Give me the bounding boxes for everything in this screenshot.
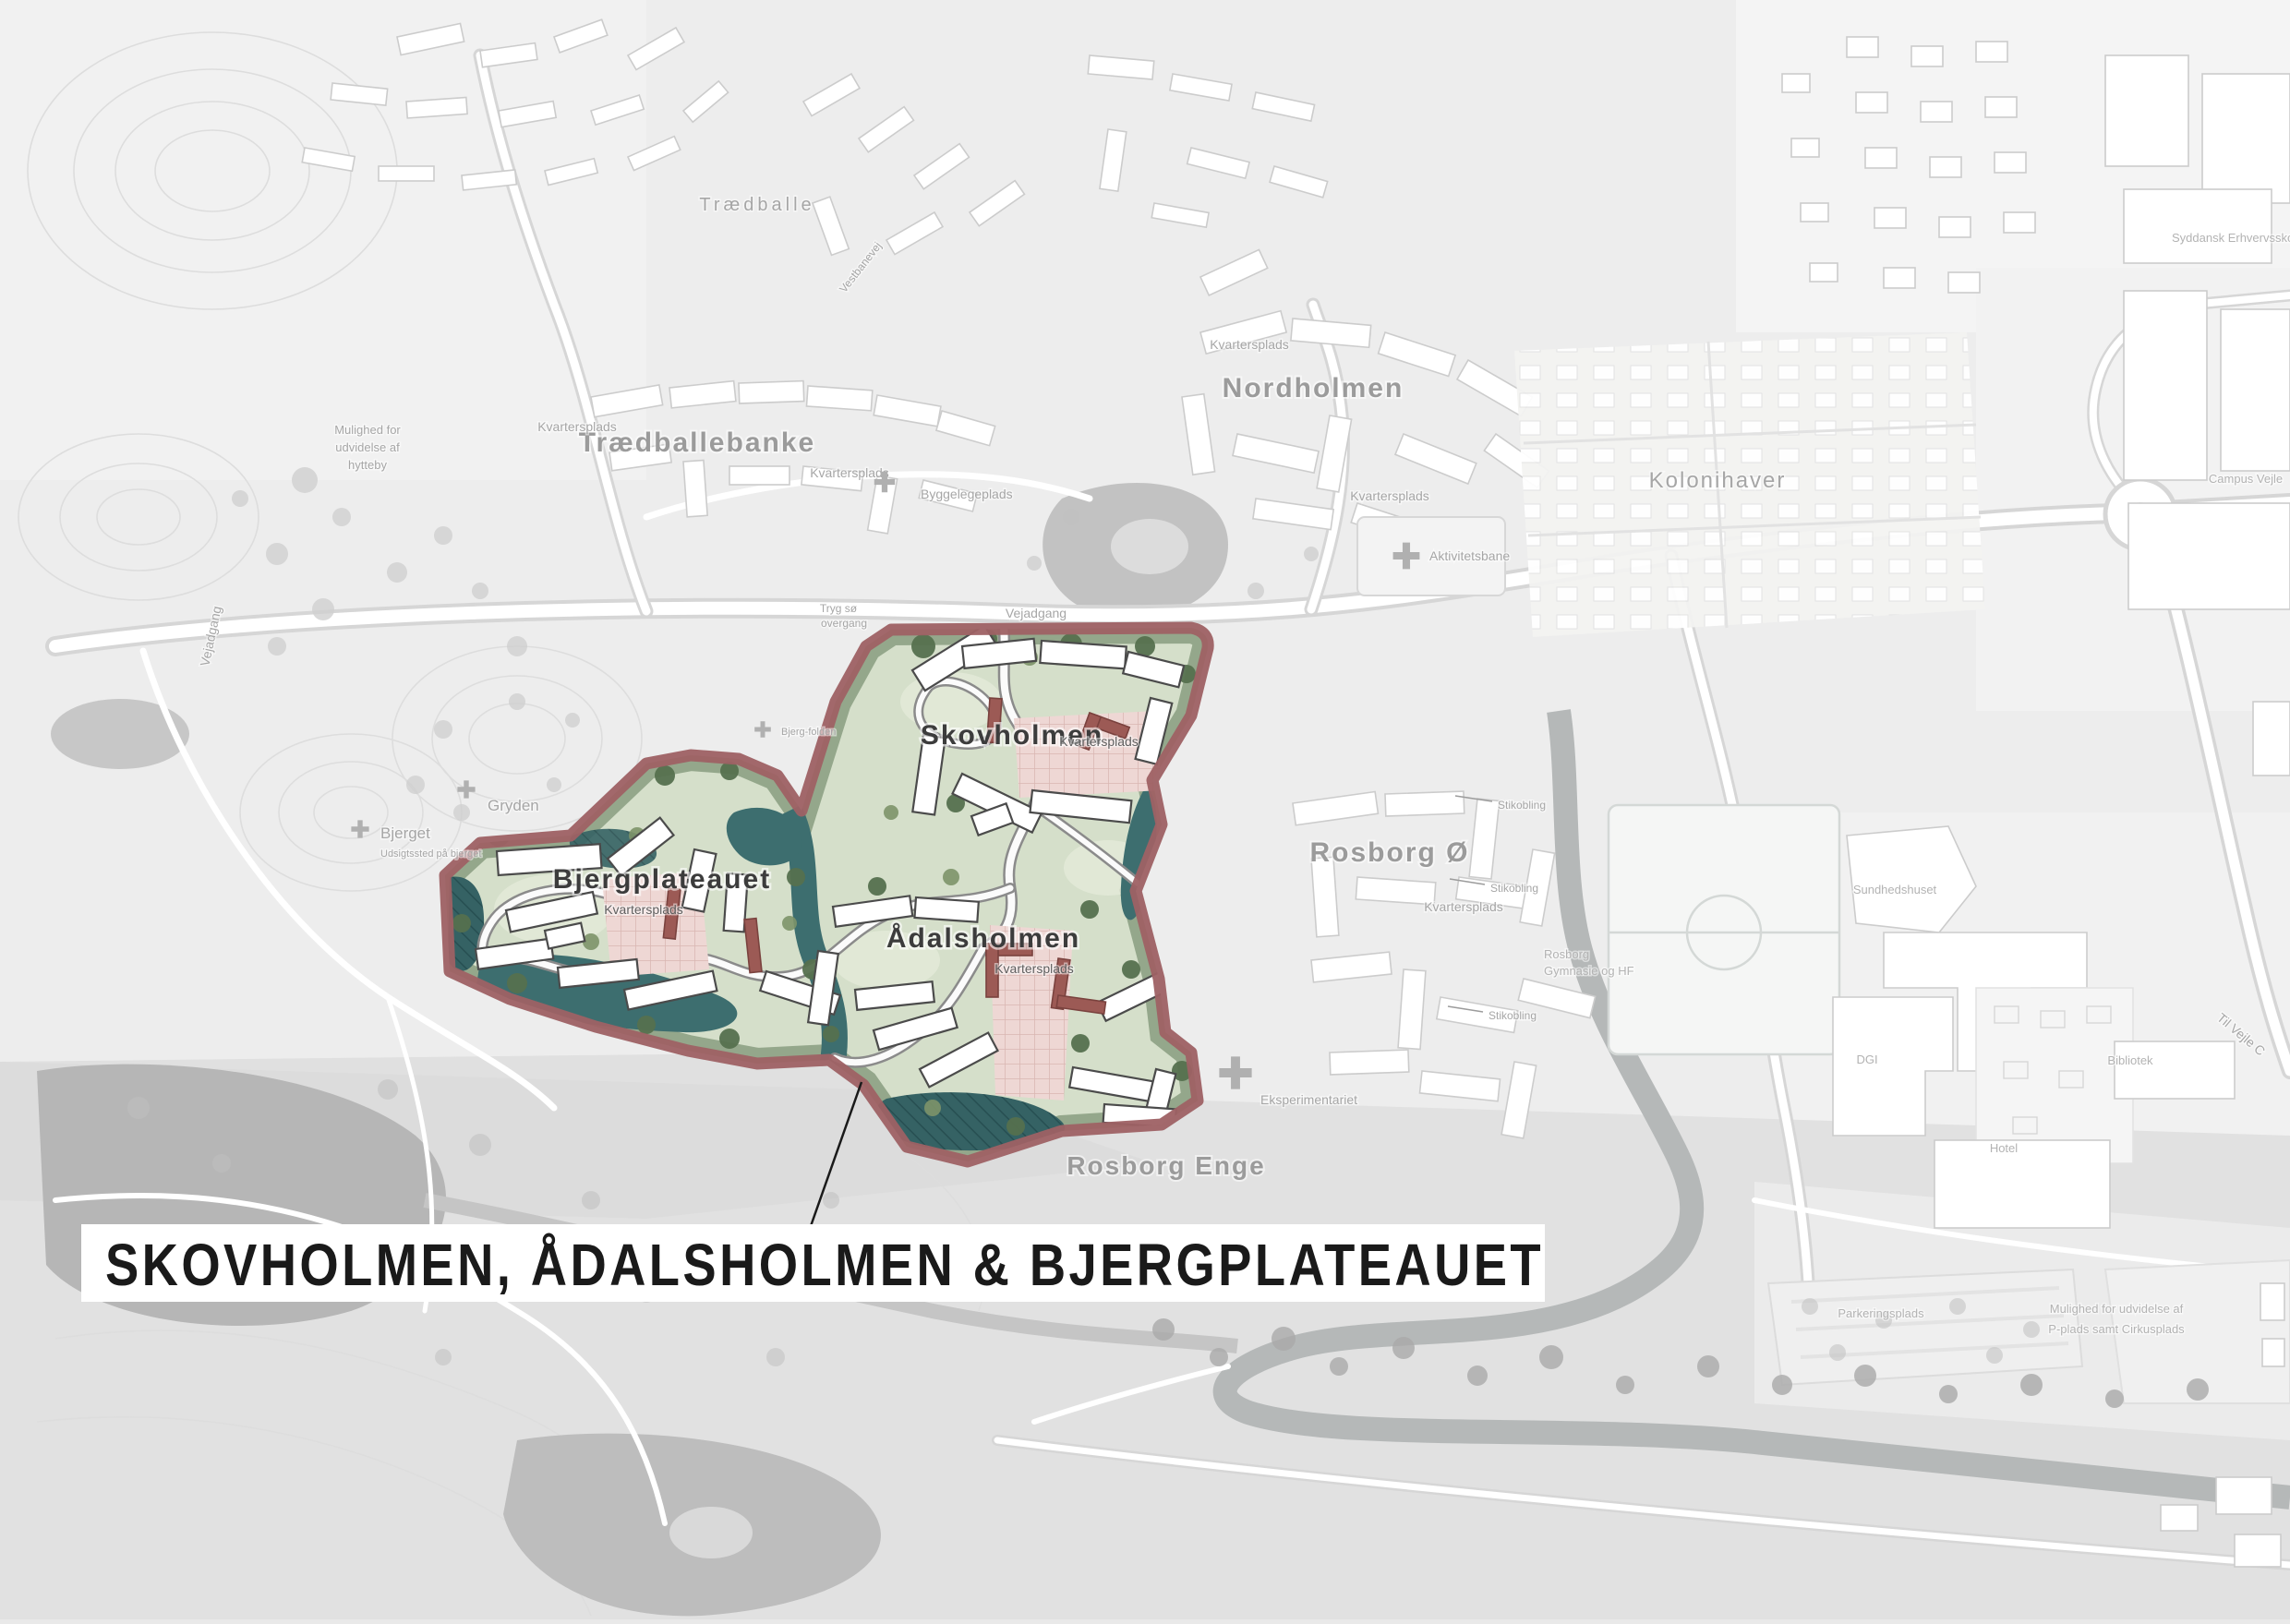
label-aktivitetsbane: Aktivitetsbane <box>1429 548 1510 563</box>
label-stikobling-3: Stikobling <box>1488 1009 1537 1022</box>
label-kvartersplads-skovholmen: Kvartersplads <box>1059 734 1139 749</box>
label-mulighed-h-3: hytteby <box>348 458 387 472</box>
label-kvartersplads-east: Kvartersplads <box>1350 488 1429 503</box>
label-parkeringsplads: Parkeringsplads <box>1838 1306 1924 1320</box>
masterplan-map: Trædballe Trædballebanke Nordholmen Kolo… <box>0 0 2290 1619</box>
label-vejadgang: Vejadgang <box>1006 606 1067 620</box>
label-mulighed-h-2: udvidelse af <box>335 440 400 454</box>
label-mulighed-p-2: P-plads samt Cirkusplads <box>2048 1322 2185 1336</box>
label-kvartersplads-aadalsholmen: Kvartersplads <box>994 961 1074 976</box>
label-byggelegeplads: Byggelegeplads <box>921 487 1013 501</box>
label-bjerget: Bjerget <box>380 824 430 842</box>
label-stikobling-2: Stikobling <box>1490 882 1538 895</box>
label-bjerg-folden: Bjerg-folden <box>781 727 836 738</box>
label-kvartersplads-rosborg: Kvartersplads <box>1424 899 1503 914</box>
label-rosborg-gym-1: Rosborg <box>1544 947 1589 961</box>
label-aadalsholmen: Ådalsholmen <box>886 923 1080 954</box>
label-overgang: overgang <box>821 617 867 630</box>
label-nordholmen: Nordholmen <box>1223 373 1404 403</box>
label-hotel: Hotel <box>1990 1141 2018 1155</box>
label-traedballe: Trædballe <box>699 195 814 215</box>
label-bjergplateauet: Bjergplateauet <box>553 864 771 895</box>
page-title: SKOVHOLMEN, ÅDALSHOLMEN & BJERGPLATEAUET <box>105 1232 1544 1298</box>
label-gryden: Gryden <box>488 797 539 814</box>
label-rosborg-gym-2: Gymnasie og HF <box>1544 964 1634 978</box>
label-dgi: DGI <box>1856 1053 1877 1066</box>
label-bjerget-sub: Udsigtssted på bjerget <box>380 848 481 860</box>
label-syddansk: Syddansk Erhvervsskole <box>2172 231 2290 245</box>
label-rosborg-o: Rosborg Ø <box>1310 837 1470 868</box>
map-canvas: Trædballe Trædballebanke Nordholmen Kolo… <box>0 0 2290 1619</box>
label-campus-vejle: Campus Vejle <box>2209 472 2283 486</box>
label-stikobling-1: Stikobling <box>1498 799 1546 812</box>
label-tryg-so: Tryg sø <box>820 602 858 615</box>
label-kvartersplads-bjergplateauet: Kvartersplads <box>604 902 683 917</box>
label-bibliotek: Bibliotek <box>2107 1053 2153 1067</box>
label-sundhedshuset: Sundhedshuset <box>1853 883 1937 896</box>
label-mulighed-h-1: Mulighed for <box>334 423 401 437</box>
label-eksperimentariet: Eksperimentariet <box>1260 1092 1357 1107</box>
label-kvartersplads-traedballebanke: Kvartersplads <box>810 465 889 480</box>
label-rosborg-enge: Rosborg Enge <box>1067 1151 1265 1180</box>
label-kvartersplads-traedballe-west: Kvartersplads <box>537 419 617 434</box>
label-kvartersplads-nordholmen: Kvartersplads <box>1210 337 1289 352</box>
label-mulighed-p-1: Mulighed for udvidelse af <box>2050 1302 2184 1316</box>
label-kolonihaver: Kolonihaver <box>1649 468 1787 493</box>
